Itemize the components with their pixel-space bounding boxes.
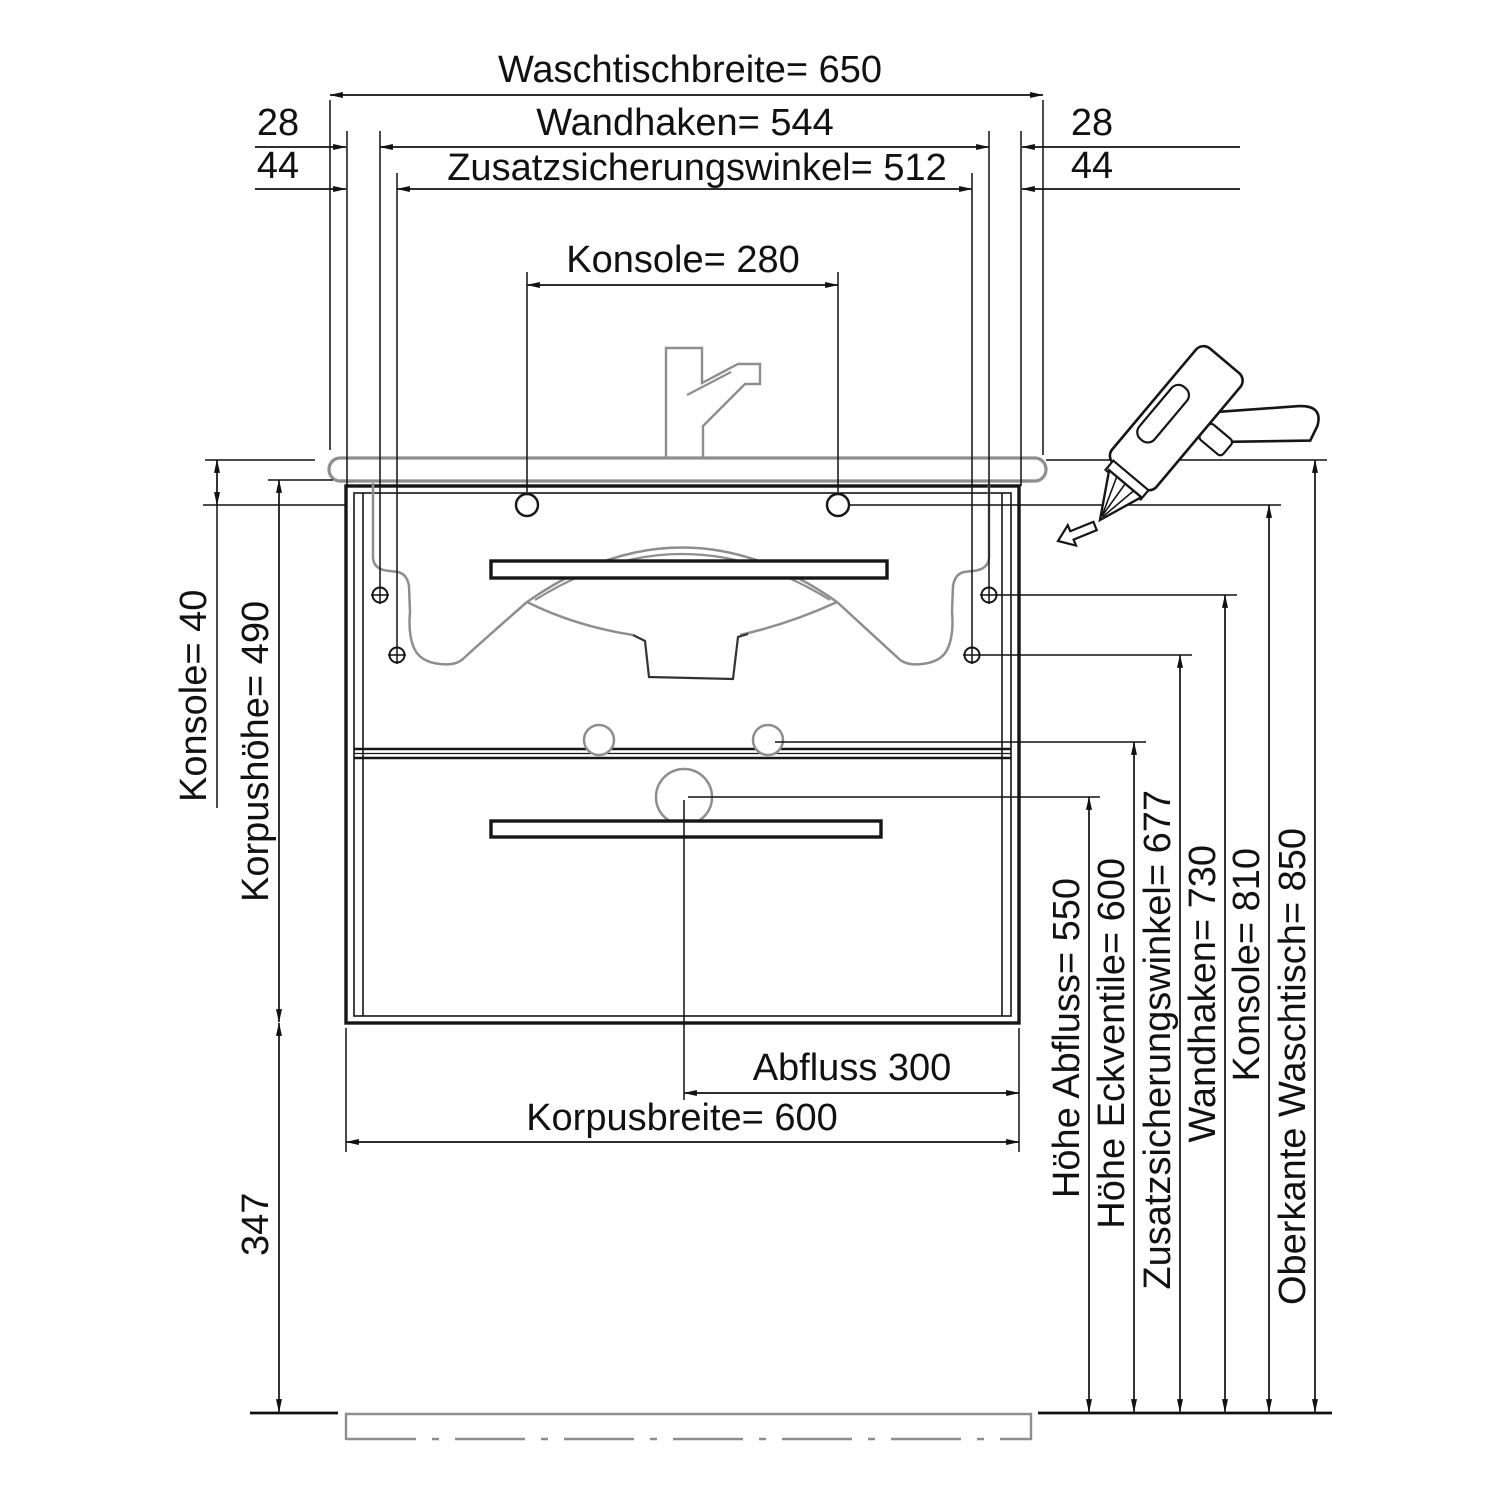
washbasin-right-cap (1021, 458, 1046, 481)
dim-label-hoehe-abfluss: Höhe Abfluss= 550 (1046, 878, 1088, 1198)
dim-label-hoehe-eckventile: Höhe Eckventile= 600 (1091, 858, 1133, 1229)
dim-label-zusatzwinkel-height: Zusatzsicherungswinkel= 677 (1137, 790, 1179, 1290)
drawer-handle-top (491, 561, 887, 578)
washbasin-top (329, 458, 1046, 481)
dim-label-korpushoehe: Korpushöhe= 490 (235, 601, 277, 902)
dim-korpushoehe: Korpushöhe= 490 (235, 480, 333, 1022)
dim-label-korpusbreite: Korpusbreite= 600 (526, 1097, 838, 1139)
washbasin-left-cap (329, 458, 354, 481)
faucet-lever-icon (687, 372, 731, 395)
dim-label-offset-44-left: 44 (257, 145, 299, 187)
dim-label-wandhaken-height: Wandhaken= 730 (1182, 845, 1224, 1143)
dim-konsole-width: Konsole= 280 (527, 239, 838, 492)
dim-label-konsole-width: Konsole= 280 (566, 239, 799, 281)
dim-label-offset-44-right: 44 (1071, 145, 1113, 187)
konsole-hole-left (516, 494, 538, 516)
dim-label-konsole-height: Konsole= 810 (1226, 848, 1268, 1081)
technical-drawing-page: Waschtischbreite= 650 Wandhaken= 544 28 … (0, 0, 1500, 1500)
dim-label-wandhaken-top: Wandhaken= 544 (536, 102, 834, 144)
konsole-hole-right (827, 494, 849, 516)
direction-arrow-icon (1054, 516, 1099, 551)
dim-label-offset-28-right: 28 (1071, 102, 1113, 144)
floor-plinth (346, 1414, 1031, 1440)
eckventil-right-circle (753, 725, 783, 755)
eckventil-left-circle (584, 725, 614, 755)
dim-label-bodenabstand: 347 (235, 1193, 277, 1256)
dim-label-konsole-offset: Konsole= 40 (173, 590, 215, 802)
drawer-handle-bottom (491, 821, 881, 837)
dim-label-zusatzwinkel-top: Zusatzsicherungswinkel= 512 (447, 147, 947, 189)
dim-label-oberkante-waschtisch: Oberkante Waschtisch= 850 (1272, 828, 1314, 1305)
vanity-installation-drawing: Waschtischbreite= 650 Wandhaken= 544 28 … (0, 0, 1500, 1500)
glue-gun-icon (1072, 326, 1327, 590)
dim-label-waschtischbreite: Waschtischbreite= 650 (498, 49, 882, 91)
dim-label-offset-28-left: 28 (257, 102, 299, 144)
dim-bodenabstand: 347 (235, 1023, 338, 1413)
dim-label-abfluss-width: Abfluss 300 (753, 1047, 952, 1089)
faucet-icon (666, 348, 760, 458)
